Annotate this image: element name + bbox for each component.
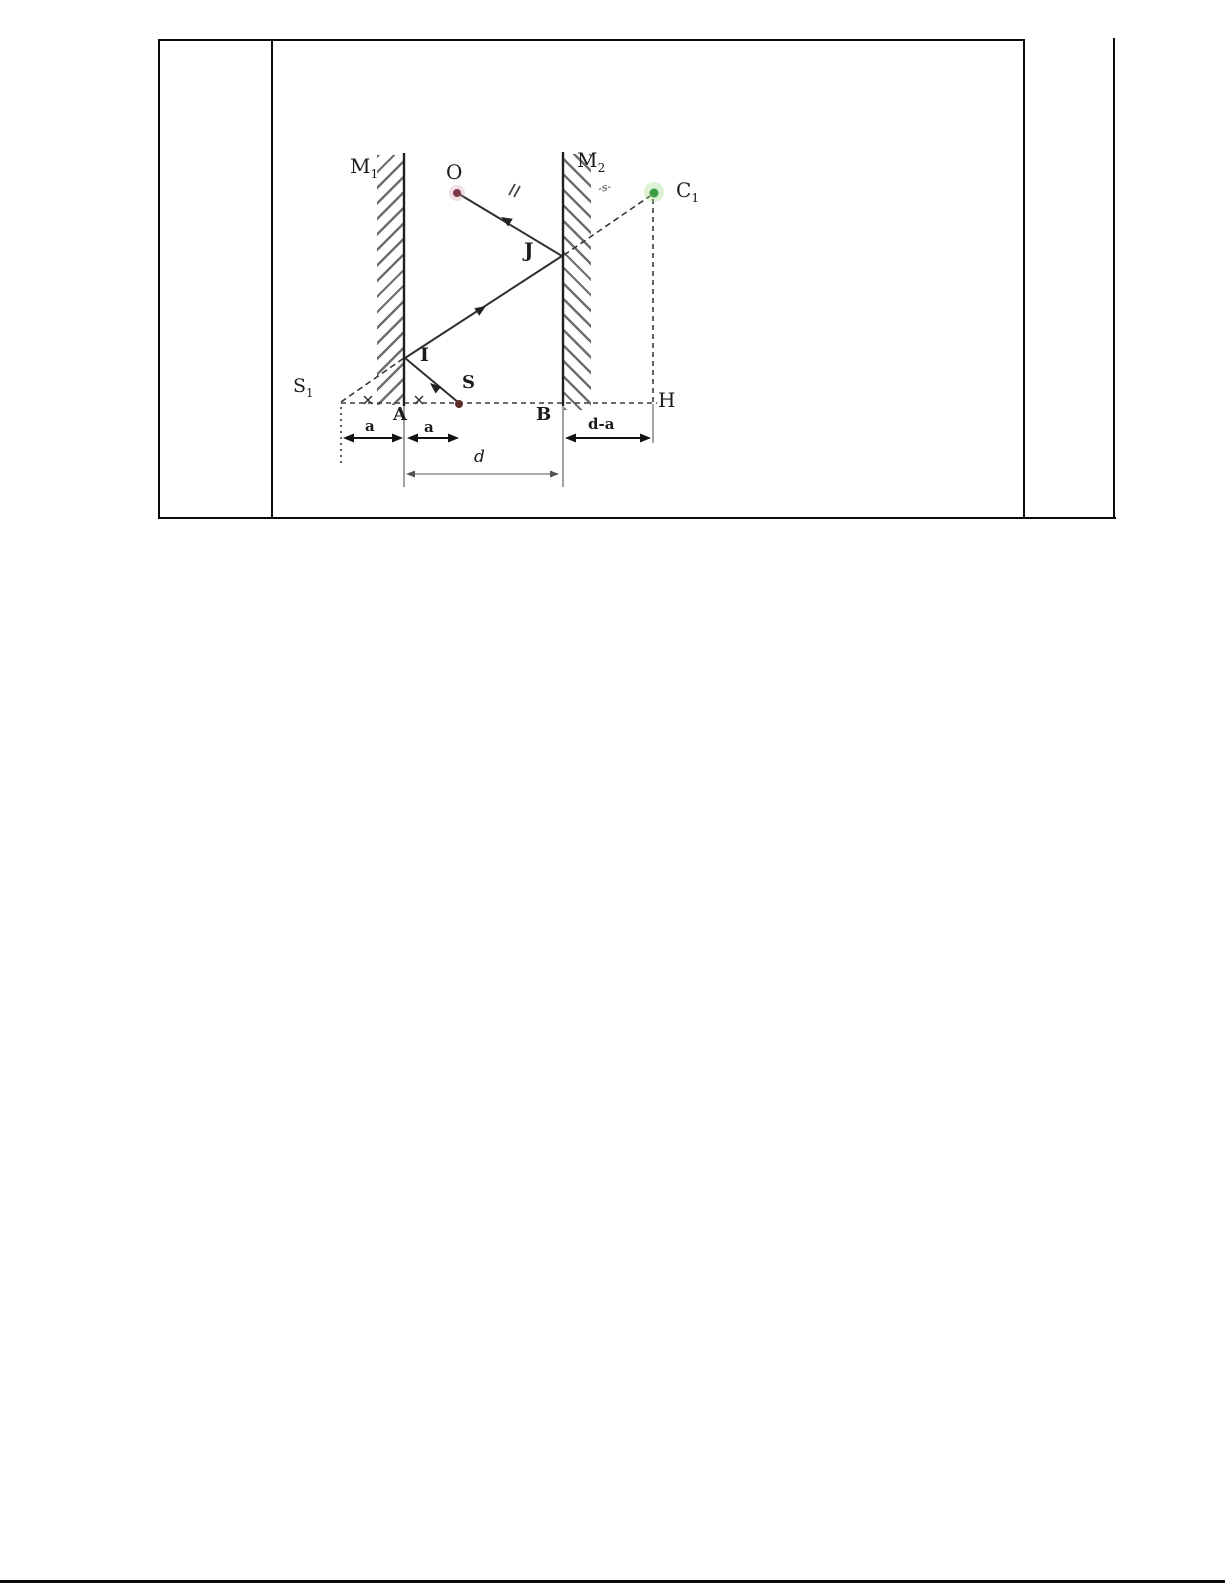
label-point-j: J [524, 240, 533, 260]
label-point-s1-base: S [293, 375, 306, 397]
construction-line-s1-to-i [341, 358, 404, 402]
label-dimension-d: d [474, 449, 485, 466]
document-page: M1 M2 O C1 J I S S1 A B H a a d-a d -s- [0, 0, 1225, 1585]
point-c1-dot [650, 189, 659, 198]
label-mirror-m1: M1 [350, 156, 378, 180]
label-mirror-m1-base: M [350, 154, 370, 178]
label-dimension-d-minus-a: d-a [588, 417, 614, 432]
label-mirror-m2-sub: 2 [597, 160, 605, 175]
ray-tick-mark-2 [514, 186, 520, 197]
label-dimension-a-left: a [365, 419, 375, 434]
ray-mark-s: -s- [597, 181, 612, 194]
point-s-dot [455, 400, 463, 408]
label-point-s1: S1 [293, 377, 314, 400]
label-point-a: A [393, 406, 407, 424]
label-point-i: I [420, 346, 429, 365]
label-point-s1-sub: 1 [306, 386, 314, 400]
point-o-dot [453, 189, 461, 197]
label-point-c1-base: C [676, 178, 691, 202]
label-point-h: H [658, 390, 675, 410]
ray-j-to-o [459, 194, 562, 256]
label-point-s: S [462, 374, 475, 392]
label-point-c1: C1 [676, 180, 699, 204]
construction-line-j-to-c1 [564, 196, 650, 255]
label-point-o: O [446, 162, 462, 182]
arrowhead-d-end [550, 471, 559, 478]
label-mirror-m2-base: M [577, 148, 597, 172]
label-dimension-a-right: a [424, 420, 434, 435]
ray-diagram-canvas [0, 0, 1225, 1585]
ray-tick-mark-1 [509, 184, 515, 195]
arrowhead-a-right-end [448, 434, 459, 443]
arrowhead-d-minus-a-end [640, 434, 651, 443]
label-mirror-m1-sub: 1 [370, 166, 378, 181]
ray-s-to-i [405, 358, 459, 403]
arrowhead-d-start [406, 471, 415, 478]
label-mirror-m2: M2 [577, 150, 605, 174]
arrowhead-a-left-start [343, 434, 354, 443]
arrowhead-d-minus-a-start [565, 434, 576, 443]
label-point-b: B [536, 406, 551, 424]
arrowhead-a-left-end [392, 434, 403, 443]
label-point-c1-sub: 1 [691, 190, 699, 205]
arrowhead-a-right-start [407, 434, 418, 443]
